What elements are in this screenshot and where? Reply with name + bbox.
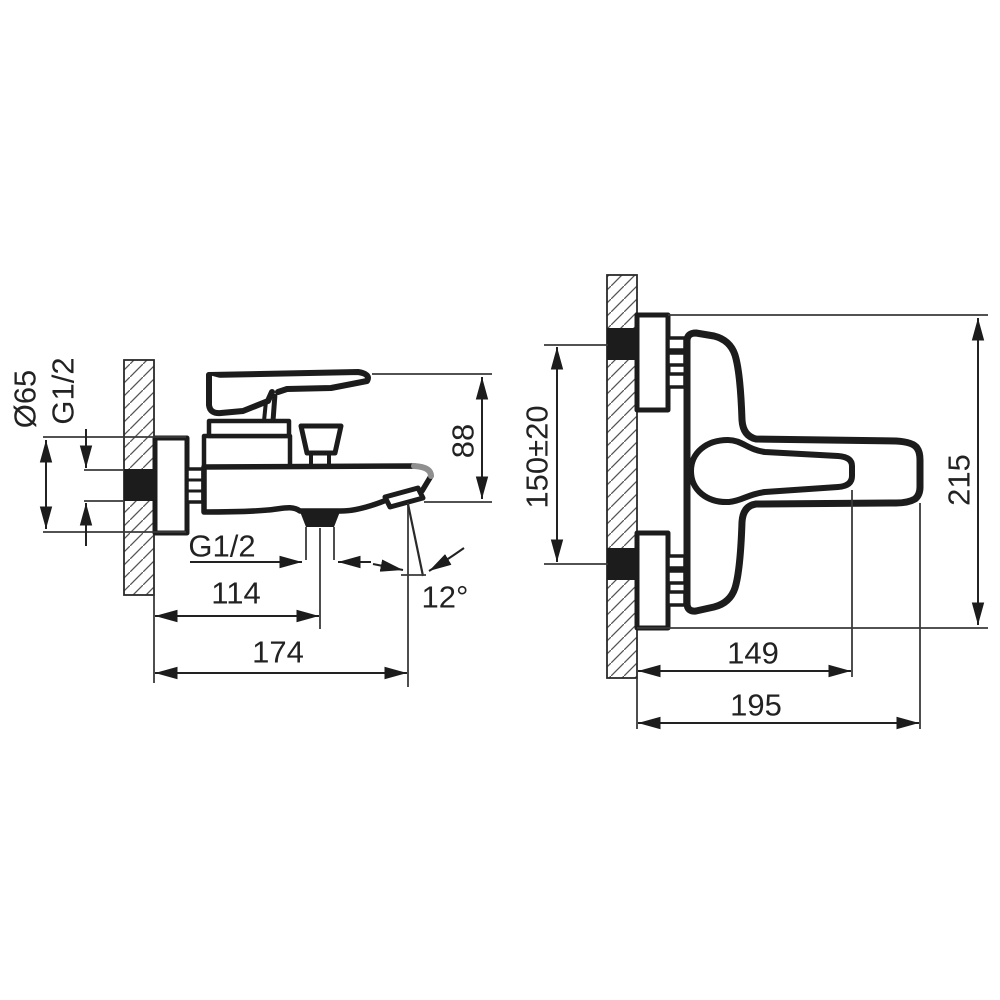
escutcheon-upper bbox=[637, 315, 668, 410]
escutcheon-side bbox=[155, 438, 187, 533]
shower-outlet-thread bbox=[299, 509, 341, 629]
dim-label-overall-reach: 195 bbox=[730, 688, 782, 723]
thread-adapter-side bbox=[187, 469, 203, 502]
supply-pipe-upper bbox=[607, 328, 637, 360]
technical-drawing: Ø65 G1/2 88 G1/2 114 174 12° bbox=[0, 0, 1000, 1000]
dim-label-connection-spacing: 150±20 bbox=[520, 405, 555, 508]
thread-adapter-upper bbox=[668, 338, 685, 387]
dim-label-wall-to-tip: 174 bbox=[252, 635, 304, 670]
supply-pipe-side bbox=[124, 469, 154, 501]
diverter-knob bbox=[301, 426, 341, 467]
handle-base-plate bbox=[209, 421, 289, 436]
dim-label-wall-to-lever-end: 149 bbox=[727, 636, 779, 671]
dim-label-outlet-thread: G1/2 bbox=[188, 529, 255, 564]
dim-label-inlet-thread: G1/2 bbox=[46, 357, 81, 424]
dim-label-spout-drop: 88 bbox=[446, 424, 481, 458]
supply-pipe-lower bbox=[607, 548, 637, 580]
dim-label-spout-angle: 12° bbox=[422, 580, 469, 615]
thread-adapter-lower bbox=[668, 556, 685, 605]
side-view: Ø65 G1/2 88 G1/2 114 174 12° bbox=[8, 357, 493, 687]
dim-label-overall-height: 215 bbox=[942, 454, 977, 506]
dim-label-wall-to-outlet: 114 bbox=[211, 576, 260, 611]
cartridge-housing bbox=[204, 436, 290, 468]
front-view: 150±20 215 149 195 bbox=[520, 275, 989, 729]
lever-handle-side bbox=[209, 372, 368, 421]
escutcheon-lower bbox=[637, 533, 668, 628]
dim-label-flange-diameter: Ø65 bbox=[8, 370, 43, 429]
drawing-canvas: Ø65 G1/2 88 G1/2 114 174 12° bbox=[0, 0, 1000, 1000]
